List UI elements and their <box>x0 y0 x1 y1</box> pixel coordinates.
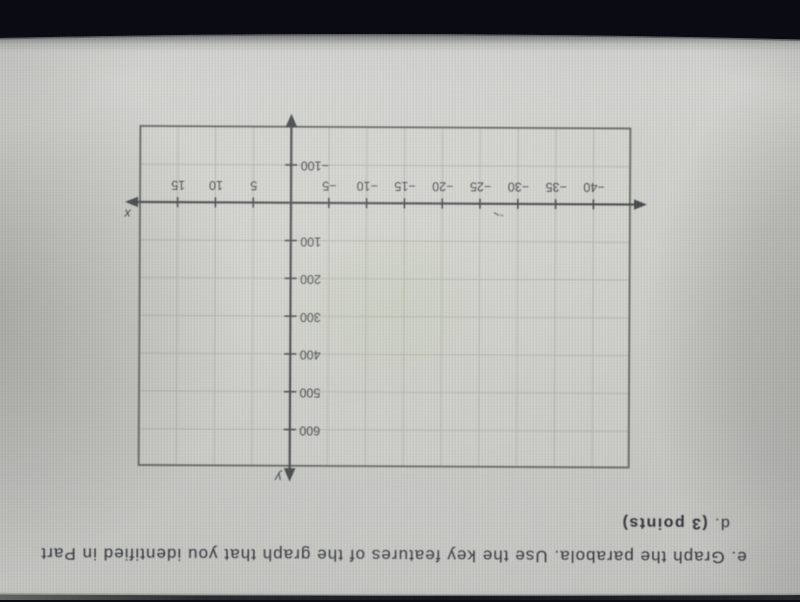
svg-text:−20: −20 <box>432 179 453 193</box>
svg-text:−35: −35 <box>546 180 567 194</box>
svg-text:100: 100 <box>300 234 321 248</box>
svg-text:y: y <box>274 470 283 485</box>
svg-text:−100: −100 <box>301 159 329 173</box>
svg-text:−10: −10 <box>357 179 378 193</box>
svg-text:300: 300 <box>300 310 321 324</box>
svg-text:−30: −30 <box>508 180 529 194</box>
svg-text:200: 200 <box>300 272 321 286</box>
svg-text:x: x <box>124 207 132 221</box>
svg-text:−5: −5 <box>322 179 336 193</box>
svg-text:−40: −40 <box>583 180 604 194</box>
svg-text:−25: −25 <box>470 179 491 193</box>
svg-text:15: 15 <box>171 178 185 192</box>
svg-text:−15: −15 <box>394 179 415 193</box>
svg-text:400: 400 <box>300 348 321 362</box>
svg-text:5: 5 <box>250 178 257 192</box>
svg-text:500: 500 <box>299 385 320 399</box>
svg-text:10: 10 <box>209 178 223 192</box>
svg-text:600: 600 <box>299 423 320 437</box>
